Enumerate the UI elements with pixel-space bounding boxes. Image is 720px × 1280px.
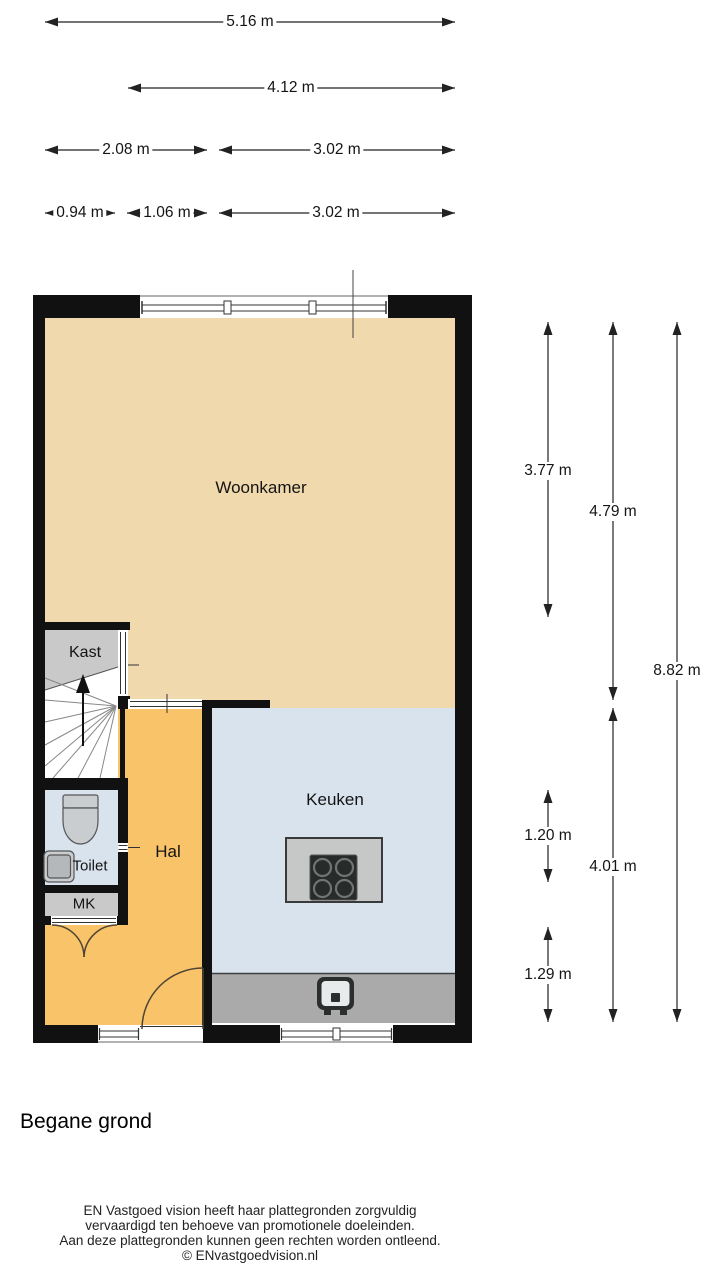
dim-label-height-total: 8.82 m [650, 662, 703, 680]
dim-label-height-left: 4.79 m [586, 503, 639, 521]
wall-segment [45, 916, 51, 925]
toilet-fixture [63, 795, 98, 844]
dim-label-height-toilet: 1.20 m [521, 827, 574, 845]
wall-segment [33, 885, 128, 893]
disclaimer-line: Aan deze plattegronden kunnen geen recht… [30, 1233, 470, 1248]
window-mullion [224, 301, 231, 314]
dim-label-width-hal: 1.06 m [140, 204, 193, 222]
floorplan-drawing [0, 0, 720, 1280]
window-kitchen [280, 1025, 393, 1043]
wall-segment [33, 295, 45, 1043]
disclaimer: EN Vastgoed vision heeft haar plattegron… [30, 1203, 470, 1263]
wall-segment [393, 1025, 472, 1043]
disclaimer-line: vervaardigd ten behoeve van promotionele… [30, 1218, 470, 1233]
copyright: © ENvastgoedvision.nl [30, 1248, 470, 1263]
floor-title: Begane grond [20, 1110, 152, 1134]
wall-segment [45, 622, 130, 630]
room-label-woonkamer: Woonkamer [215, 478, 306, 498]
wall-segment [120, 708, 125, 778]
wall-segment [117, 916, 128, 925]
window-bottom-sidelight [98, 1025, 140, 1043]
dim-label-width-keuken: 3.02 m [309, 204, 362, 222]
disclaimer-line: EN Vastgoed vision heeft haar plattegron… [30, 1203, 470, 1218]
wall-segment [33, 778, 128, 790]
window-top [140, 296, 388, 318]
wall-segment [455, 295, 472, 1043]
room-label-kast: Kast [69, 644, 101, 662]
wall-segment [33, 295, 140, 318]
dim-label-height-woonkamer: 3.77 m [521, 462, 574, 480]
wall-segment [118, 790, 128, 843]
wall-segment [118, 893, 128, 916]
dim-label-width-kast: 0.94 m [53, 204, 106, 222]
dim-label-width-woonkamer: 4.12 m [264, 79, 317, 97]
floorplan-page: 5.16 m 4.12 m 2.08 m 3.02 m 0.94 m 1.06 … [0, 0, 720, 1280]
window-mullion [309, 301, 316, 314]
dim-label-height-keuken: 4.01 m [586, 858, 639, 876]
room-label-mk: MK [73, 896, 96, 913]
dim-label-width-total: 5.16 m [223, 13, 276, 31]
kitchen-island [286, 838, 382, 902]
wall-segment [202, 700, 270, 708]
kitchen-sink [317, 977, 354, 1015]
room-label-keuken: Keuken [306, 790, 364, 810]
wall-segment [203, 1025, 280, 1043]
dim-label-width-left-zone: 2.08 m [99, 141, 152, 159]
dim-label-height-hal: 1.29 m [521, 966, 574, 984]
room-label-hal: Hal [155, 842, 181, 862]
wall-segment [33, 1025, 98, 1043]
dim-label-width-right-zone: 3.02 m [310, 141, 363, 159]
room-label-toilet: Toilet [72, 858, 107, 875]
window-mullion [333, 1028, 340, 1040]
wall-segment [388, 295, 472, 318]
toilet-sink [44, 851, 74, 882]
